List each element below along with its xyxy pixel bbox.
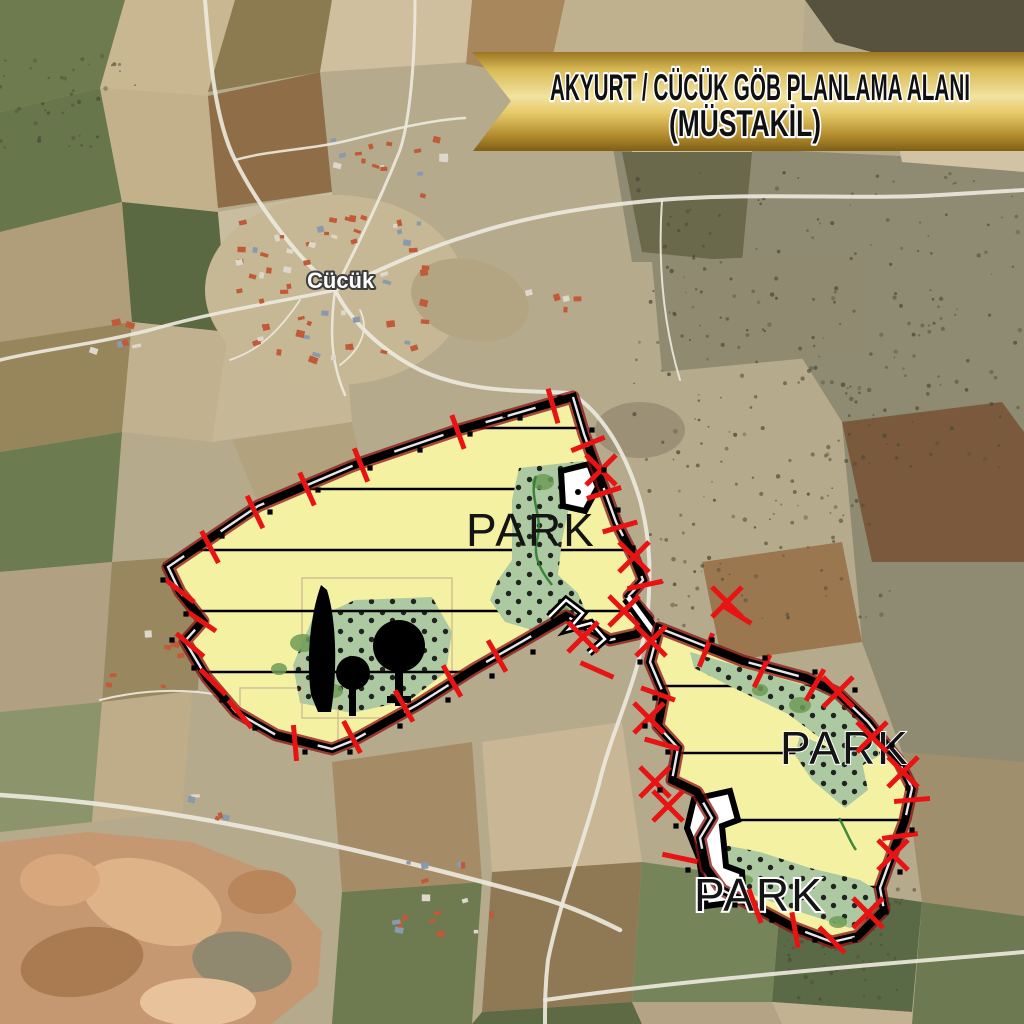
banner-title-line2: (MÜSTAKİL) [669, 103, 821, 144]
round-tree-icon-small [336, 656, 370, 690]
village-label: Cücük [307, 268, 375, 293]
park-label-2: PARK [780, 722, 910, 774]
title-banner: AKYURT / CÜCÜK GÖB PLANLAMA ALANI (MÜSTA… [472, 52, 1024, 151]
satellite-map-image: PARK PARK PARK [0, 0, 1024, 1024]
map-poster: PARK PARK PARK [0, 0, 1024, 1024]
planning-zone-left: PARK [150, 397, 668, 754]
round-tree-icon-large [373, 620, 425, 672]
banner-title-line1: AKYURT / CÜCÜK GÖB PLANLAMA ALANI [550, 67, 970, 108]
park-label-1: PARK [466, 504, 596, 556]
